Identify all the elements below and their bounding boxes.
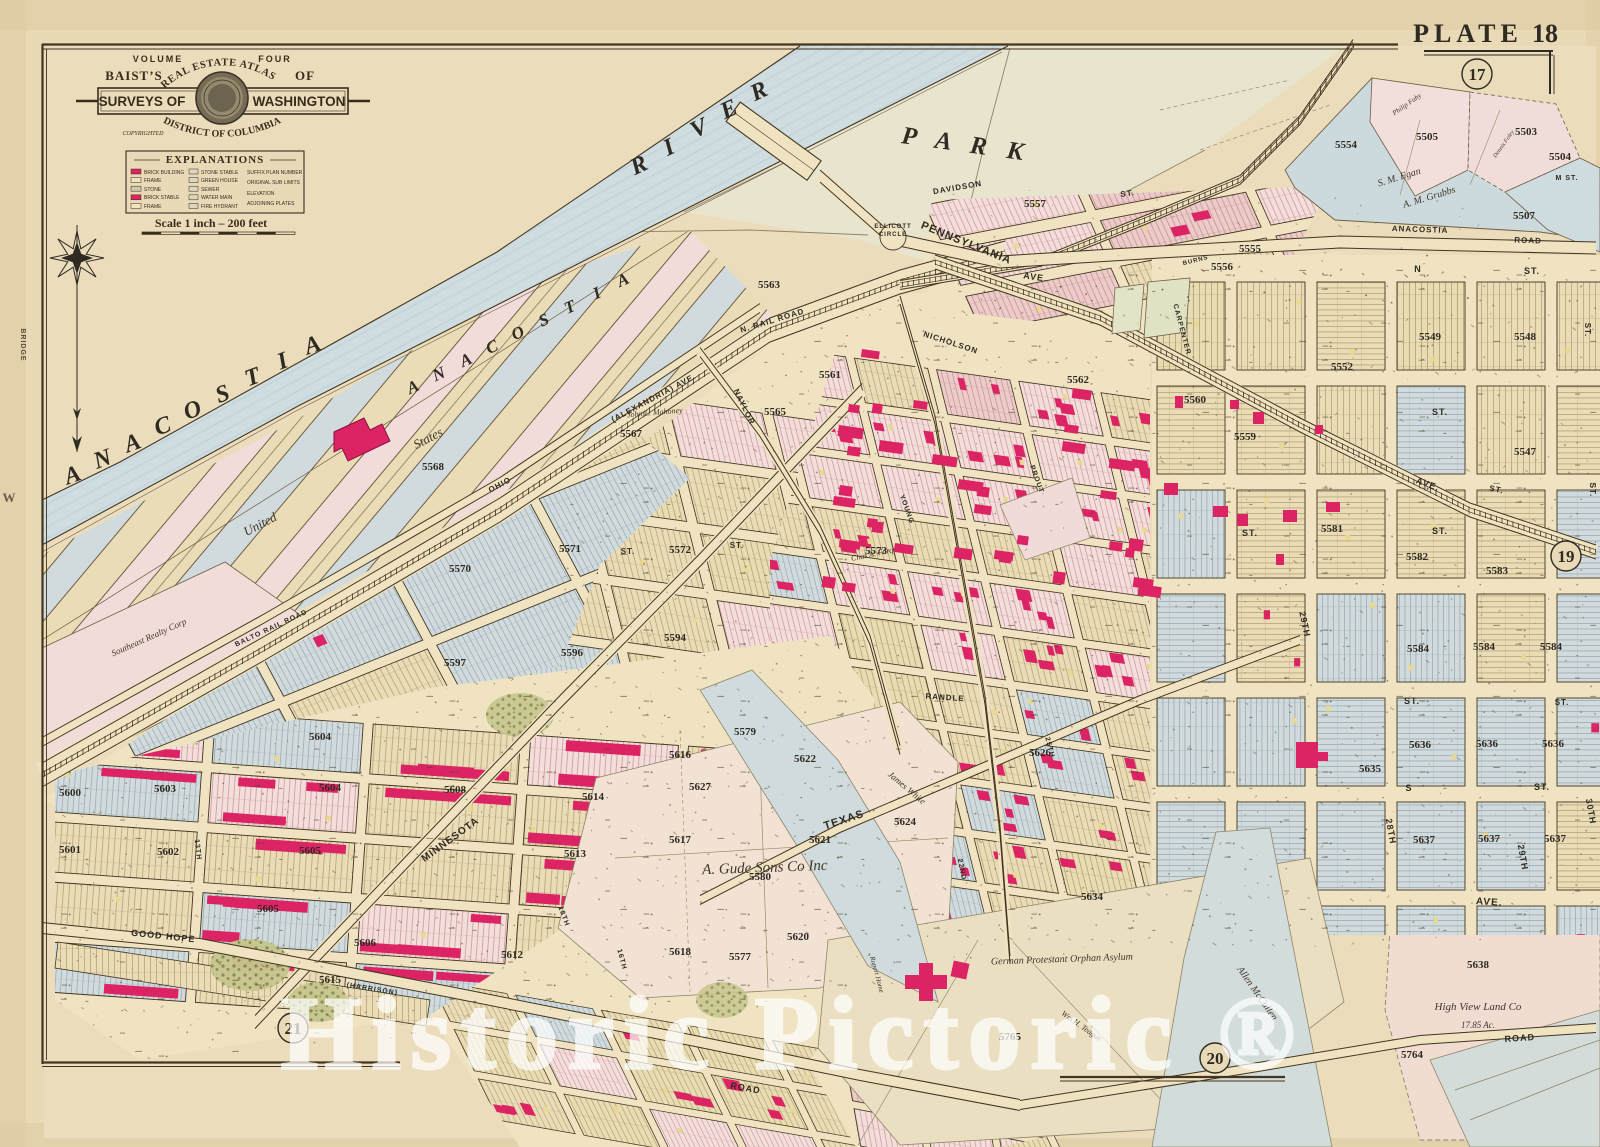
- svg-text:5584: 5584: [1407, 643, 1430, 655]
- svg-text:5572: 5572: [669, 544, 692, 556]
- svg-text:COPYRIGHTED: COPYRIGHTED: [122, 131, 164, 137]
- svg-text:5604: 5604: [309, 731, 332, 743]
- svg-text:5618: 5618: [669, 946, 692, 958]
- svg-text:FRAME: FRAME: [144, 204, 162, 210]
- svg-text:Historic Pictoric ®: Historic Pictoric ®: [281, 976, 1305, 1091]
- svg-text:AVE.: AVE.: [1476, 896, 1503, 909]
- svg-text:5563: 5563: [758, 279, 781, 291]
- svg-text:5605: 5605: [299, 845, 322, 857]
- svg-text:5614: 5614: [582, 791, 605, 803]
- svg-text:ST.: ST.: [730, 541, 745, 550]
- svg-text:ROAD: ROAD: [1514, 236, 1542, 246]
- svg-text:5624: 5624: [894, 816, 917, 828]
- svg-text:ROAD: ROAD: [1504, 1032, 1535, 1044]
- svg-text:18: 18: [1532, 19, 1558, 48]
- svg-text:FRAME: FRAME: [144, 178, 162, 184]
- svg-text:BAIST’S: BAIST’S: [105, 68, 163, 83]
- svg-text:5504: 5504: [1549, 151, 1572, 163]
- svg-text:5620: 5620: [787, 931, 810, 943]
- svg-text:5583: 5583: [1486, 565, 1509, 577]
- svg-text:WASHINGTON: WASHINGTON: [253, 94, 346, 109]
- svg-text:ST.: ST.: [1555, 698, 1570, 707]
- svg-text:5626: 5626: [1029, 747, 1052, 759]
- svg-text:SURVEYS OF: SURVEYS OF: [99, 94, 186, 109]
- svg-text:5547: 5547: [1514, 446, 1537, 458]
- svg-text:High View Land Co: High View Land Co: [1434, 1001, 1522, 1013]
- svg-text:5570: 5570: [449, 563, 472, 575]
- svg-text:BRIDGE: BRIDGE: [19, 328, 26, 361]
- svg-text:5617: 5617: [669, 834, 692, 846]
- svg-text:5549: 5549: [1419, 331, 1442, 343]
- svg-text:EXPLANATIONS: EXPLANATIONS: [166, 154, 265, 166]
- svg-text:5581: 5581: [1321, 523, 1343, 535]
- svg-text:ELLICOTT: ELLICOTT: [874, 224, 911, 230]
- svg-text:W: W: [3, 490, 16, 505]
- svg-text:5622: 5622: [794, 753, 817, 765]
- svg-text:ST.: ST.: [1242, 528, 1258, 538]
- svg-text:17: 17: [1469, 65, 1487, 84]
- svg-text:S: S: [1405, 783, 1412, 793]
- svg-text:5562: 5562: [1067, 374, 1090, 386]
- svg-text:5638: 5638: [1467, 959, 1490, 971]
- svg-text:5605: 5605: [257, 903, 280, 915]
- svg-text:BRICK BUILDING: BRICK BUILDING: [144, 170, 184, 176]
- svg-text:BRICK STABLE: BRICK STABLE: [144, 195, 180, 201]
- svg-text:5577: 5577: [729, 951, 752, 963]
- svg-text:PLATE: PLATE: [1413, 19, 1523, 48]
- svg-text:5634: 5634: [1081, 891, 1104, 903]
- svg-text:ELEVATION: ELEVATION: [247, 191, 275, 197]
- svg-text:5559: 5559: [1234, 431, 1257, 443]
- svg-text:5571: 5571: [559, 543, 581, 555]
- svg-text:5556: 5556: [1211, 261, 1234, 273]
- svg-text:STONE STABLE: STONE STABLE: [201, 170, 239, 176]
- svg-text:5568: 5568: [422, 461, 445, 473]
- svg-text:5548: 5548: [1514, 331, 1537, 343]
- svg-text:ST.: ST.: [1588, 483, 1597, 498]
- svg-text:5616: 5616: [669, 749, 692, 761]
- svg-text:OF: OF: [295, 68, 315, 83]
- svg-text:5601: 5601: [59, 844, 81, 856]
- svg-text:5507: 5507: [1513, 210, 1536, 222]
- svg-text:5579: 5579: [734, 726, 757, 738]
- svg-text:5565: 5565: [764, 406, 787, 418]
- svg-text:5637: 5637: [1478, 833, 1501, 845]
- svg-text:CIRCLE: CIRCLE: [879, 232, 907, 238]
- svg-text:5552: 5552: [1331, 361, 1354, 373]
- svg-text:N: N: [1414, 264, 1422, 274]
- svg-text:5503: 5503: [1515, 126, 1538, 138]
- svg-text:ADJOINING PLATES: ADJOINING PLATES: [247, 201, 295, 207]
- svg-text:5606: 5606: [354, 937, 377, 949]
- svg-text:5561: 5561: [819, 369, 841, 381]
- svg-text:5554: 5554: [1335, 139, 1358, 151]
- svg-text:STONE: STONE: [144, 187, 162, 193]
- svg-text:5505: 5505: [1416, 131, 1439, 143]
- svg-text:M ST.: M ST.: [1556, 175, 1579, 182]
- svg-text:5567: 5567: [620, 428, 643, 440]
- svg-text:WATER MAIN: WATER MAIN: [201, 195, 233, 201]
- svg-text:5636: 5636: [1409, 739, 1432, 751]
- svg-text:FIRE HYDRANT: FIRE HYDRANT: [201, 204, 238, 210]
- svg-text:19: 19: [1558, 547, 1575, 566]
- svg-text:5637: 5637: [1544, 833, 1567, 845]
- svg-text:17.85 Ac.: 17.85 Ac.: [1461, 1020, 1495, 1030]
- svg-text:5603: 5603: [154, 783, 177, 795]
- svg-text:VOLUME: VOLUME: [133, 54, 184, 64]
- svg-text:5584: 5584: [1473, 641, 1496, 653]
- svg-text:Scale 1 inch – 200 feet: Scale 1 inch – 200 feet: [155, 216, 267, 230]
- svg-text:ST.: ST.: [1432, 526, 1448, 536]
- svg-text:5584: 5584: [1540, 641, 1563, 653]
- svg-text:ST.: ST.: [621, 547, 636, 556]
- svg-text:5608: 5608: [444, 784, 467, 796]
- svg-text:5612: 5612: [501, 949, 524, 961]
- svg-text:ST.: ST.: [1404, 696, 1420, 706]
- svg-text:SUFFIX PLAN NUMBER: SUFFIX PLAN NUMBER: [247, 170, 303, 176]
- svg-text:ST.: ST.: [1524, 266, 1540, 276]
- svg-text:5637: 5637: [1413, 834, 1436, 846]
- svg-text:5627: 5627: [689, 781, 712, 793]
- svg-text:FOUR: FOUR: [258, 54, 292, 64]
- svg-text:5621: 5621: [809, 834, 831, 846]
- svg-text:5602: 5602: [157, 846, 180, 858]
- svg-text:5604: 5604: [319, 782, 342, 794]
- svg-text:5557: 5557: [1024, 198, 1047, 210]
- svg-text:5555: 5555: [1239, 243, 1262, 255]
- svg-text:5594: 5594: [664, 632, 687, 644]
- svg-text:SEWER: SEWER: [201, 187, 220, 193]
- svg-text:5613: 5613: [564, 848, 587, 860]
- svg-text:GREEN HOUSE: GREEN HOUSE: [201, 178, 239, 184]
- svg-text:5636: 5636: [1476, 738, 1499, 750]
- svg-text:5600: 5600: [59, 787, 82, 799]
- svg-text:5596: 5596: [561, 647, 584, 659]
- svg-text:ST.: ST.: [1534, 782, 1550, 792]
- svg-text:5636: 5636: [1542, 738, 1565, 750]
- svg-text:ST.: ST.: [1583, 323, 1592, 338]
- svg-text:5635: 5635: [1359, 763, 1382, 775]
- svg-text:ORIGINAL SUB LIMITS: ORIGINAL SUB LIMITS: [247, 180, 301, 186]
- svg-text:5597: 5597: [444, 657, 467, 669]
- svg-text:ST.: ST.: [1432, 407, 1448, 417]
- svg-text:5582: 5582: [1406, 551, 1429, 563]
- svg-text:5560: 5560: [1184, 394, 1207, 406]
- svg-text:5764: 5764: [1401, 1049, 1424, 1061]
